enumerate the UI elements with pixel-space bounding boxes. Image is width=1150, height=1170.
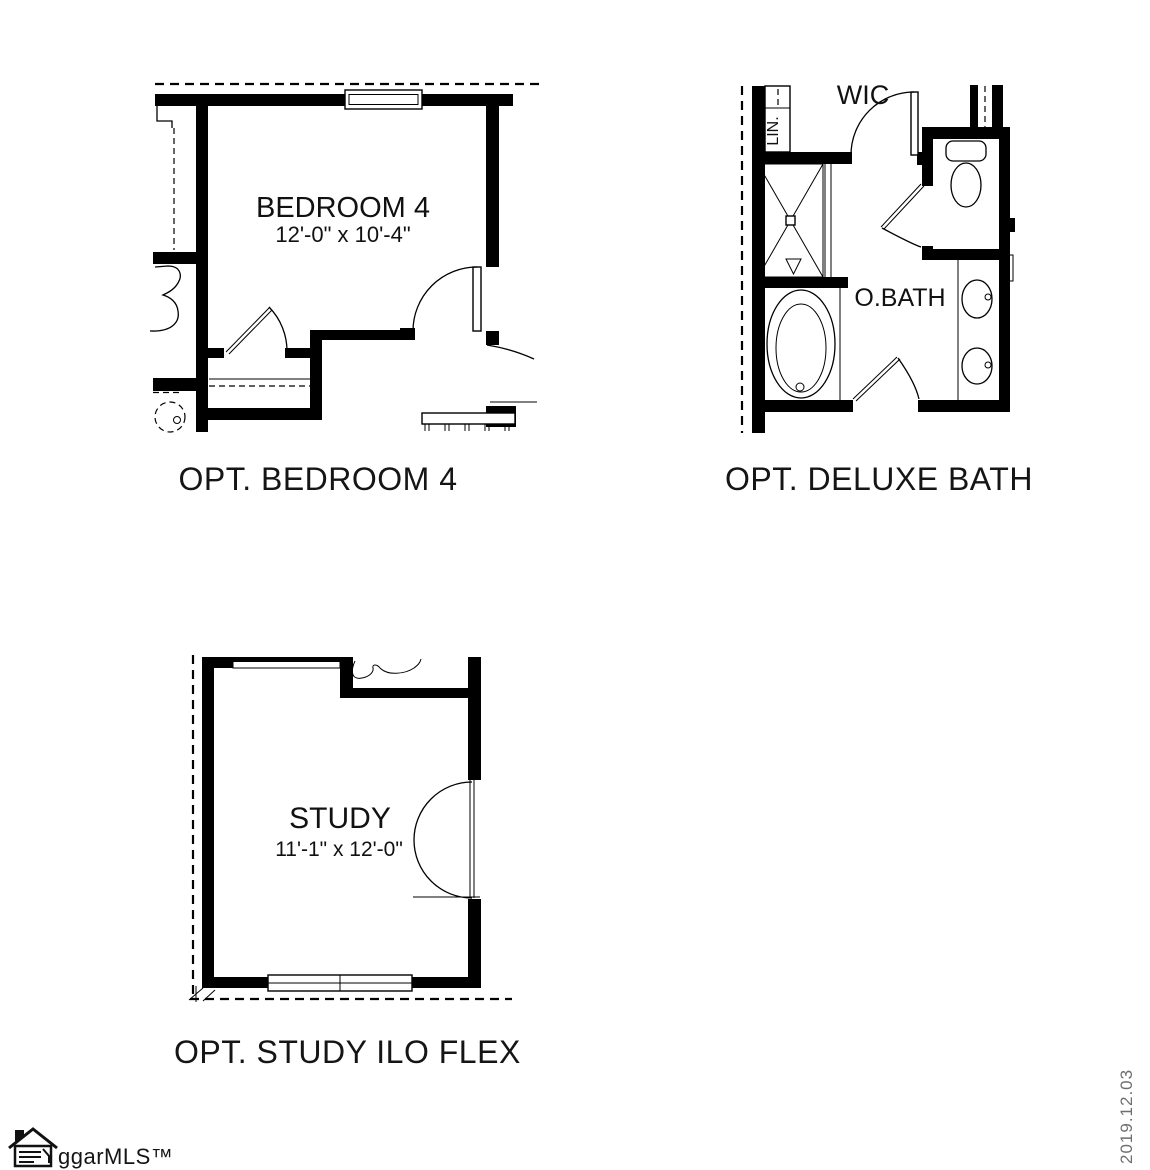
toilet-icon bbox=[946, 141, 986, 207]
study-caption: OPT. STUDY ILO FLEX bbox=[174, 1034, 504, 1071]
bedroom4-floor-plan: BEDROOM 4 12'-0" x 10'-4" bbox=[140, 78, 545, 440]
linen-label: LIN. bbox=[765, 116, 782, 145]
mls-logo: ggarMLS™ bbox=[6, 1125, 173, 1170]
window-icon bbox=[268, 975, 412, 991]
window-icon bbox=[345, 90, 422, 109]
bath-door-icon bbox=[853, 357, 919, 401]
hall-door-arc bbox=[487, 345, 534, 359]
double-swing-door-icon bbox=[413, 780, 480, 898]
stair-railing-icon bbox=[422, 402, 537, 431]
walls bbox=[153, 94, 513, 432]
bedroom4-caption: OPT. BEDROOM 4 bbox=[168, 461, 468, 498]
entry-door-icon bbox=[413, 267, 481, 331]
deluxe-bath-caption: OPT. DELUXE BATH bbox=[725, 461, 1025, 498]
deluxe-bath-floor-plan: WIC LIN. O.BATH bbox=[735, 78, 1015, 440]
mls-logo-text: ggarMLS™ bbox=[58, 1144, 173, 1170]
decor-squiggle bbox=[352, 659, 421, 678]
room-label: BEDROOM 4 bbox=[256, 192, 430, 224]
study-floor-plan: STUDY 11'-1" x 12'-0" bbox=[185, 650, 545, 1005]
room-dimensions: 12'-0" x 10'-4" bbox=[275, 222, 410, 247]
date-stamp: 2019.12.03 bbox=[1117, 1062, 1137, 1164]
recessed-opening bbox=[233, 662, 340, 668]
room-label: O.BATH bbox=[854, 284, 945, 312]
house-logo-icon bbox=[6, 1125, 64, 1170]
pedestal-fixture-icon bbox=[150, 266, 180, 331]
closet-door-icon bbox=[226, 307, 287, 354]
wall-notch bbox=[157, 106, 174, 250]
toilet-partial-icon bbox=[155, 402, 185, 432]
room-label: STUDY bbox=[289, 802, 391, 835]
room-dimensions: 11'-1" x 12'-0" bbox=[275, 838, 403, 861]
tub-icon bbox=[767, 288, 840, 400]
wic-label: WIC bbox=[837, 80, 889, 110]
water-closet-door-icon bbox=[881, 184, 924, 247]
shower-icon bbox=[758, 164, 831, 277]
floor-plan-sheet: BEDROOM 4 12'-0" x 10'-4" OPT. BEDROOM 4 bbox=[0, 0, 1150, 1170]
closet-shelf-lines bbox=[209, 379, 310, 386]
